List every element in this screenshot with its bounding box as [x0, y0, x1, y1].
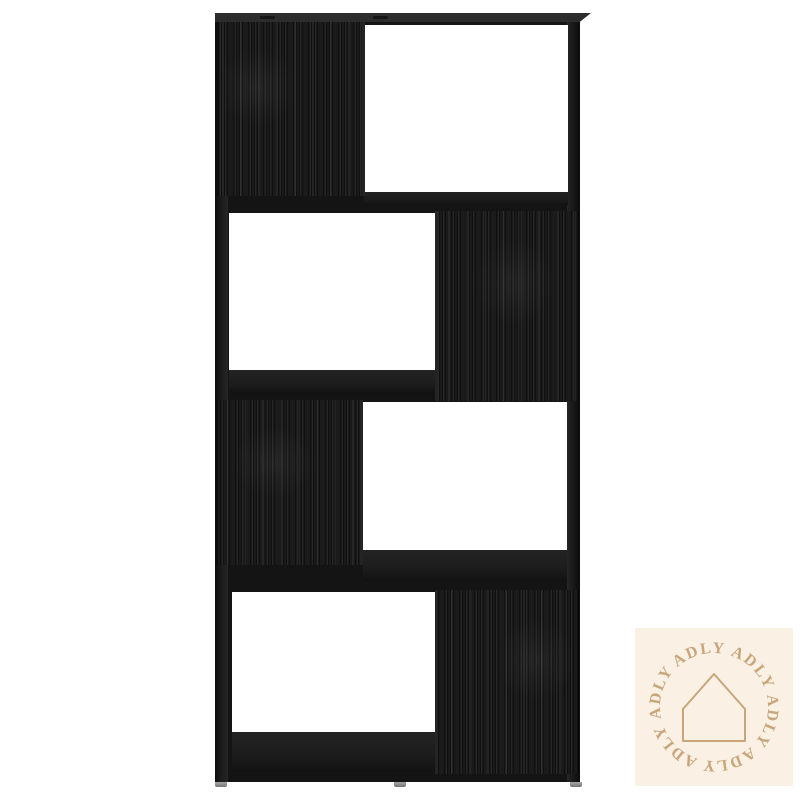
svg-text:ADLY: ADLY: [667, 628, 734, 687]
product-photo: ADLY ADLY ADLY ADLY ADLY ADLY: [0, 0, 800, 800]
wood-panel-tier-3-left: [215, 400, 363, 565]
watermark-badge: ADLY ADLY ADLY ADLY ADLY ADLY: [635, 628, 793, 786]
ring-word: ADLY: [667, 628, 734, 687]
cam-hole: [373, 16, 388, 19]
bookcase-top-face: [215, 13, 591, 22]
ring-word: ADLY: [645, 717, 703, 775]
svg-text:ADLY: ADLY: [645, 717, 703, 775]
svg-text:ADLY: ADLY: [724, 638, 782, 696]
svg-text:ADLY: ADLY: [635, 660, 694, 727]
open-compartment-tier-4: [232, 592, 435, 732]
house-outline-icon: [683, 674, 745, 741]
wood-panel-tier-1-left: [215, 21, 365, 196]
svg-text:ADLY: ADLY: [693, 727, 760, 786]
open-compartment-tier-2: [229, 213, 435, 370]
shelf-floor-tier-3: [363, 550, 567, 581]
wood-panel-tier-2-right: [435, 211, 580, 401]
ring-word: ADLY: [724, 638, 782, 696]
svg-text:ADLY: ADLY: [734, 686, 793, 753]
ring-word: ADLY: [635, 660, 694, 727]
ring-word: ADLY: [734, 686, 793, 753]
bookcase-foot-right: [570, 782, 582, 787]
shelf-floor-tier-4: [232, 732, 435, 772]
cam-hole: [260, 16, 275, 19]
bookcase-foot-middle: [394, 782, 406, 787]
ring-word: ADLY: [693, 727, 760, 786]
bookcase-foot-left: [215, 782, 227, 787]
shelf-floor-tier-1: [364, 192, 568, 205]
wood-panel-tier-4-right: [435, 590, 580, 774]
open-compartment-tier-1: [364, 25, 568, 192]
open-compartment-tier-3: [363, 402, 567, 550]
shelf-floor-tier-2: [229, 370, 435, 394]
brand-logo: ADLY ADLY ADLY ADLY ADLY ADLY: [635, 628, 793, 786]
